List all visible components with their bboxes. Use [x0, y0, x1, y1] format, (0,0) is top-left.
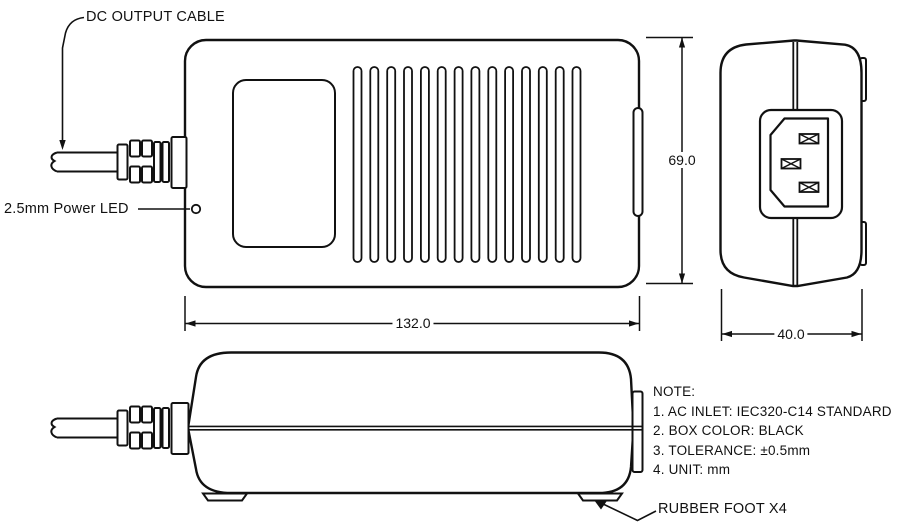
top-view	[185, 40, 643, 287]
label-power-led: 2.5mm Power LED	[4, 201, 129, 217]
vent-slot	[488, 67, 496, 262]
vent-slot	[471, 67, 479, 262]
strain-relief	[118, 403, 189, 454]
rubber-foot-left	[203, 494, 247, 501]
note-line: 4. UNIT: mm	[653, 460, 892, 480]
arrowhead	[59, 140, 65, 150]
note-line: 2. BOX COLOR: BLACK	[653, 421, 892, 441]
arrowhead	[679, 274, 685, 284]
dimension-value-width: 40.0	[774, 326, 807, 342]
label-dc-output-cable: DC OUTPUT CABLE	[86, 9, 225, 25]
arrowhead	[186, 320, 196, 326]
arrowhead	[722, 331, 732, 337]
dc-cable-top	[51, 137, 186, 188]
leader-rubber-foot	[594, 500, 656, 521]
dimension-value-length: 132.0	[392, 315, 433, 331]
label-rubber-foot: RUBBER FOOT X4	[658, 501, 787, 517]
vent-slot	[404, 67, 412, 262]
vent-slot	[455, 67, 463, 262]
vent-slot	[421, 67, 429, 262]
end-view	[721, 41, 867, 287]
vent-slot	[505, 67, 513, 262]
arrowhead	[629, 320, 639, 326]
front-view	[188, 353, 643, 501]
front-view-body	[188, 353, 634, 494]
strain-relief	[118, 137, 187, 188]
vent-slot	[539, 67, 547, 262]
rubber-foot-right	[578, 494, 622, 501]
note-line: 3. TOLERANCE: ±0.5mm	[653, 441, 892, 461]
ac-inlet-edge-slot	[634, 108, 643, 216]
vent-slot	[573, 67, 581, 262]
vent-slot	[522, 67, 530, 262]
vent-slot	[556, 67, 564, 262]
cable-break-squiggle	[51, 419, 57, 438]
note-line: 1. AC INLET: IEC320-C14 STANDARD	[653, 402, 892, 422]
mechanical-drawing-page: DC OUTPUT CABLE 2.5mm Power LED 69.0 132…	[0, 0, 917, 522]
vent-slot	[438, 67, 446, 262]
notes-block: NOTE: 1. AC INLET: IEC320-C14 STANDARD 2…	[653, 382, 892, 480]
power-led-hole	[192, 205, 200, 213]
leader-dc-output-cable	[59, 18, 84, 151]
arrowhead	[852, 331, 862, 337]
vent-slot	[370, 67, 378, 262]
cable-break-squiggle	[51, 153, 57, 172]
ac-inlet-flange-edge	[633, 392, 643, 473]
note-title: NOTE:	[653, 382, 892, 402]
arrowhead	[679, 38, 685, 48]
vent-slot	[354, 67, 362, 262]
dc-cable-front	[51, 403, 188, 454]
vent-slot	[387, 67, 395, 262]
dimension-value-height: 69.0	[665, 152, 698, 168]
label-recess	[233, 80, 335, 247]
